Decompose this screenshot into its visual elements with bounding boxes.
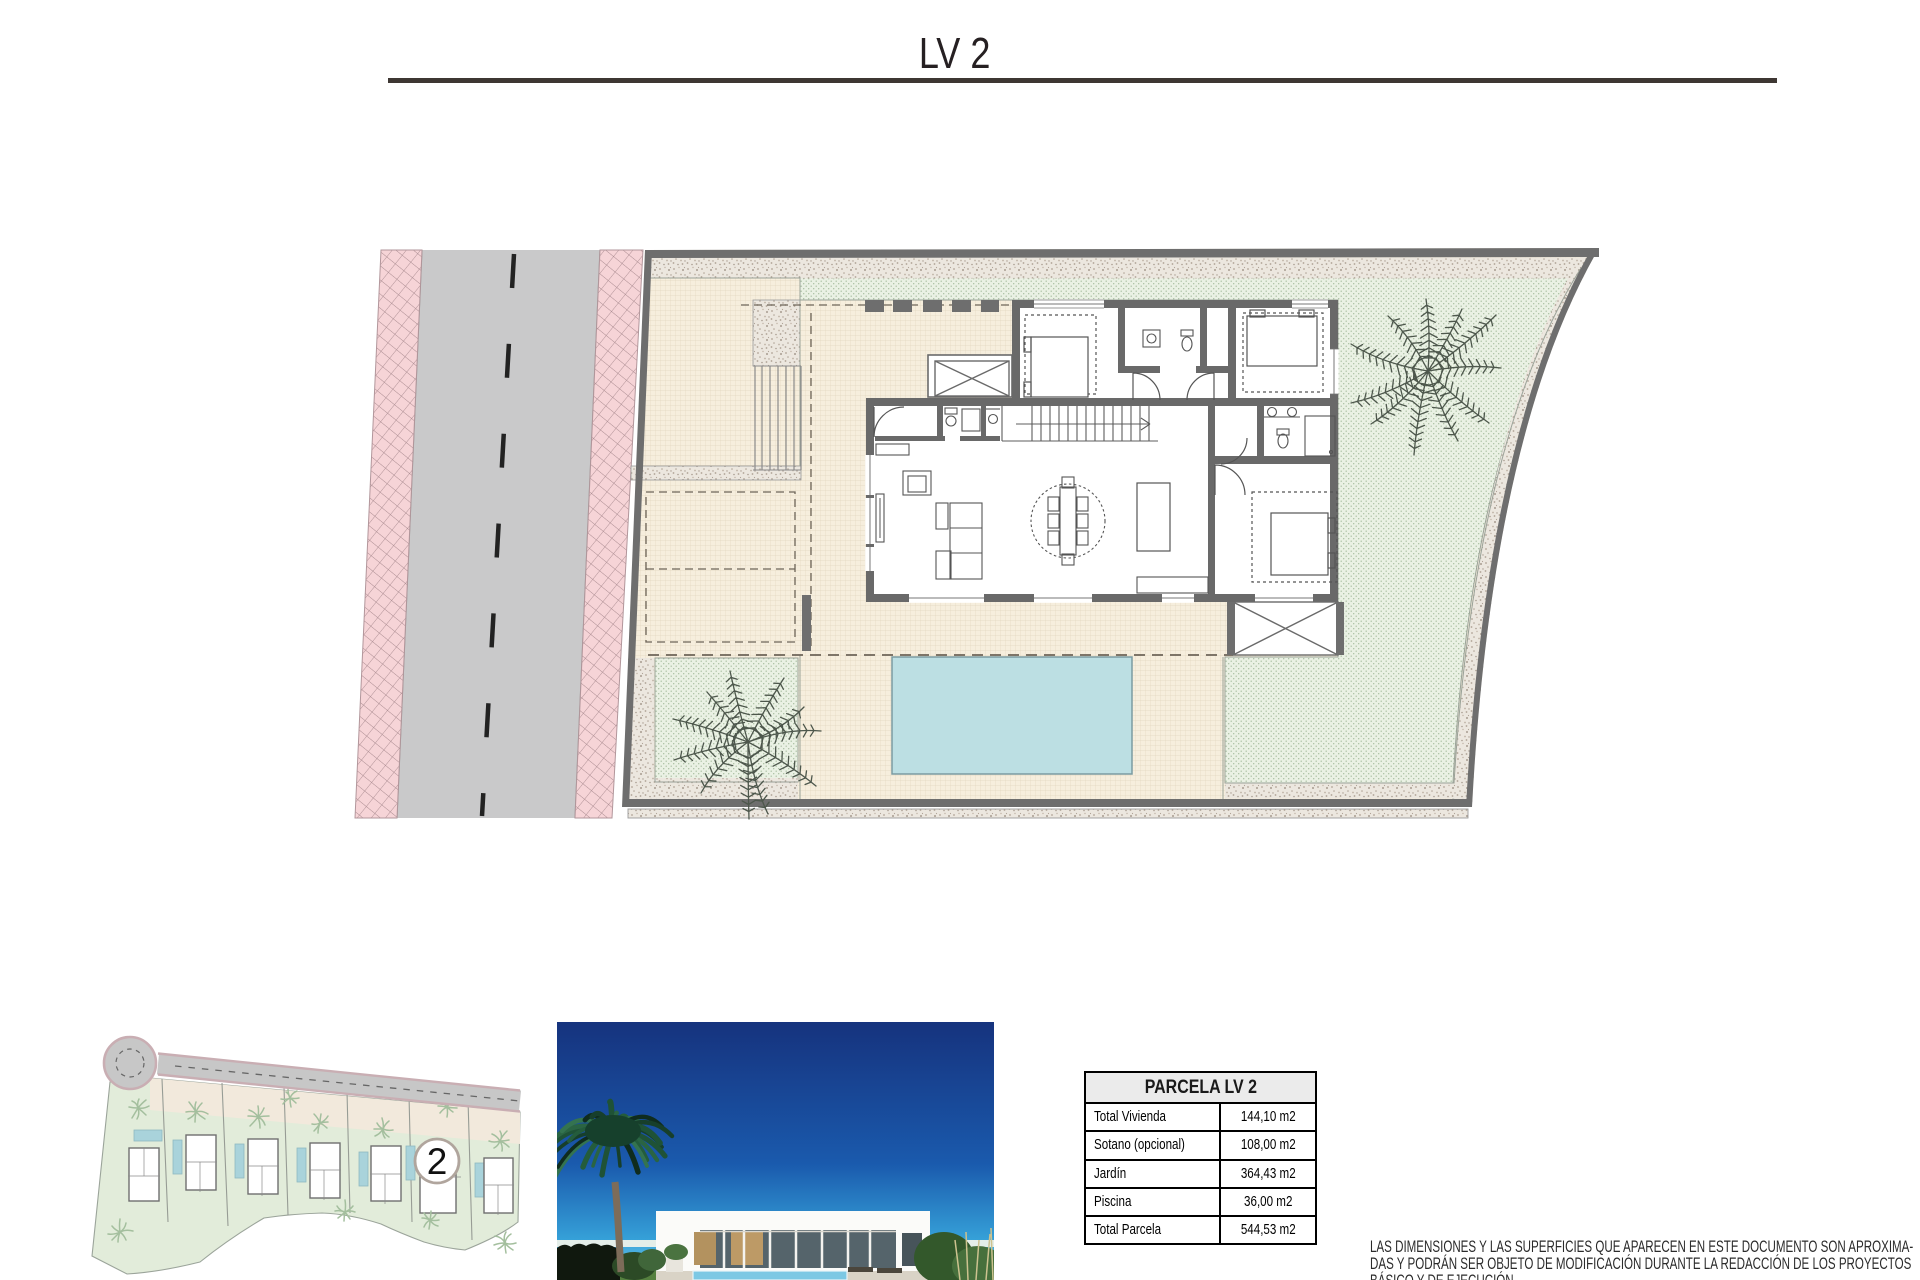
svg-text:2: 2 [427, 1141, 448, 1182]
